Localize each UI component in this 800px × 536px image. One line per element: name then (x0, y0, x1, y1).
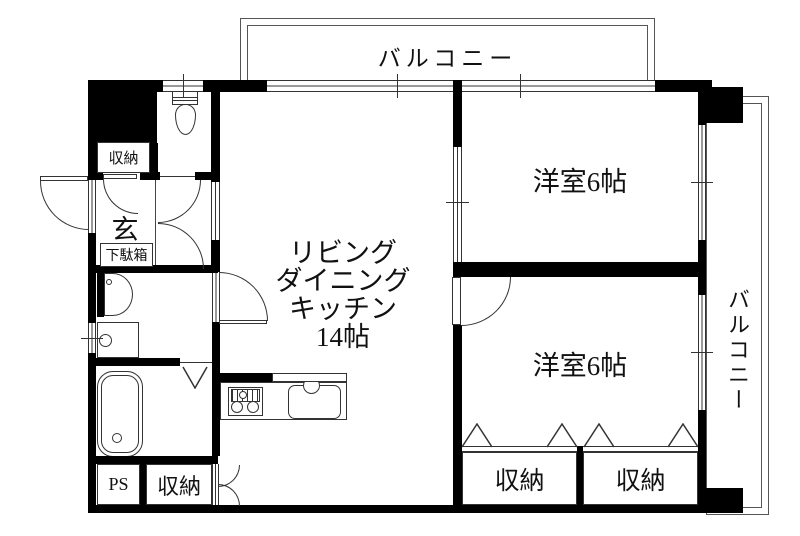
closet-fold-mark (461, 423, 493, 448)
window-tick (691, 352, 713, 353)
wall-corner-block (700, 488, 743, 513)
ldk-closet-door-swing-bottom (218, 484, 240, 506)
bedroom-top-sliding-door (453, 147, 462, 262)
closet-fold-mark (583, 423, 615, 448)
ldk-label-line1: リビング (253, 239, 433, 267)
wall (698, 240, 706, 295)
ldk-label: リビング ダイニング キッチン 14帖 (253, 239, 433, 351)
wall (698, 410, 706, 505)
floor-plan: バルコニー バルコニー (0, 0, 800, 536)
wall (698, 92, 706, 125)
ldk-label-line3: キッチン (253, 295, 433, 323)
closet-left: 収納 (462, 452, 577, 505)
wall-rooms-divider (453, 262, 698, 277)
wall (212, 322, 220, 373)
window-tick (691, 182, 713, 183)
stove-burner-right (247, 401, 259, 413)
ldk-label-line2: ダイニング (253, 267, 433, 295)
bedroom-bottom-label: 洋室6帖 (480, 344, 680, 383)
wall (88, 353, 96, 513)
closet-left-label: 収納 (494, 461, 544, 497)
window-tick (81, 338, 103, 339)
washbasin-faucet-dot (106, 279, 112, 285)
ldk-closet: 収納 (146, 464, 212, 505)
bathtub-drain (112, 433, 122, 443)
wall (211, 80, 220, 182)
balcony-top-label: バルコニー (340, 39, 555, 73)
entrance-label: 玄 (100, 208, 150, 247)
hall-closet: 収納 (97, 142, 150, 173)
corridor-thin-wall (211, 182, 220, 240)
wall (88, 172, 103, 180)
balcony-right-label: バルコニー (721, 258, 753, 443)
stove-knob (239, 391, 247, 399)
wall (88, 358, 180, 366)
kitchen-pass-counter (272, 373, 347, 382)
bath-fold-mark (182, 366, 208, 389)
bedroom-bottom-door-swing (461, 277, 511, 326)
stove-burner-left (231, 401, 243, 413)
hall-closet-label: 収納 (108, 147, 138, 168)
window-tick (446, 202, 469, 203)
toilet-door-leaf (160, 176, 195, 177)
bathroom-door-opening (180, 362, 212, 363)
wall (453, 80, 462, 147)
washer-pan-drain (99, 334, 112, 347)
window-tick (397, 74, 398, 98)
washroom-door-swing (158, 223, 204, 269)
shoe-cabinet-label: 下駄箱 (106, 245, 148, 265)
wall-shaft (88, 80, 157, 143)
window-tick (520, 74, 521, 98)
ldk-closet-label: 収納 (157, 469, 201, 501)
toilet-door-swing (158, 180, 201, 223)
closet-fold-mark (546, 423, 578, 448)
wall (88, 505, 743, 513)
washbasin-counter-edge (97, 271, 104, 317)
wall-kitchen-hanging (212, 373, 272, 382)
toilet-bowl (175, 104, 196, 135)
closet-right-label: 収納 (615, 461, 665, 497)
wall (140, 172, 160, 180)
entrance-door-swing (40, 181, 89, 230)
bedroom-bottom-door-leaf (452, 277, 461, 325)
wall (212, 382, 220, 456)
wall-corner-block (700, 87, 743, 123)
pipe-space-label: PS (108, 474, 128, 495)
entrance-step-line (155, 180, 156, 265)
ldk-balcony-window (267, 80, 453, 92)
pipe-space: PS (97, 464, 140, 505)
closet-right: 収納 (583, 452, 698, 505)
ldk-label-line4: 14帖 (253, 323, 433, 351)
wall (453, 325, 462, 513)
closet-fold-mark (667, 423, 699, 448)
window-tick (183, 74, 184, 98)
bedroom-top-label: 洋室6帖 (480, 160, 680, 199)
bedroom-top-balcony-window (462, 80, 655, 92)
wall (88, 233, 96, 323)
wall (88, 456, 218, 464)
entrance-door-opening (88, 178, 96, 233)
